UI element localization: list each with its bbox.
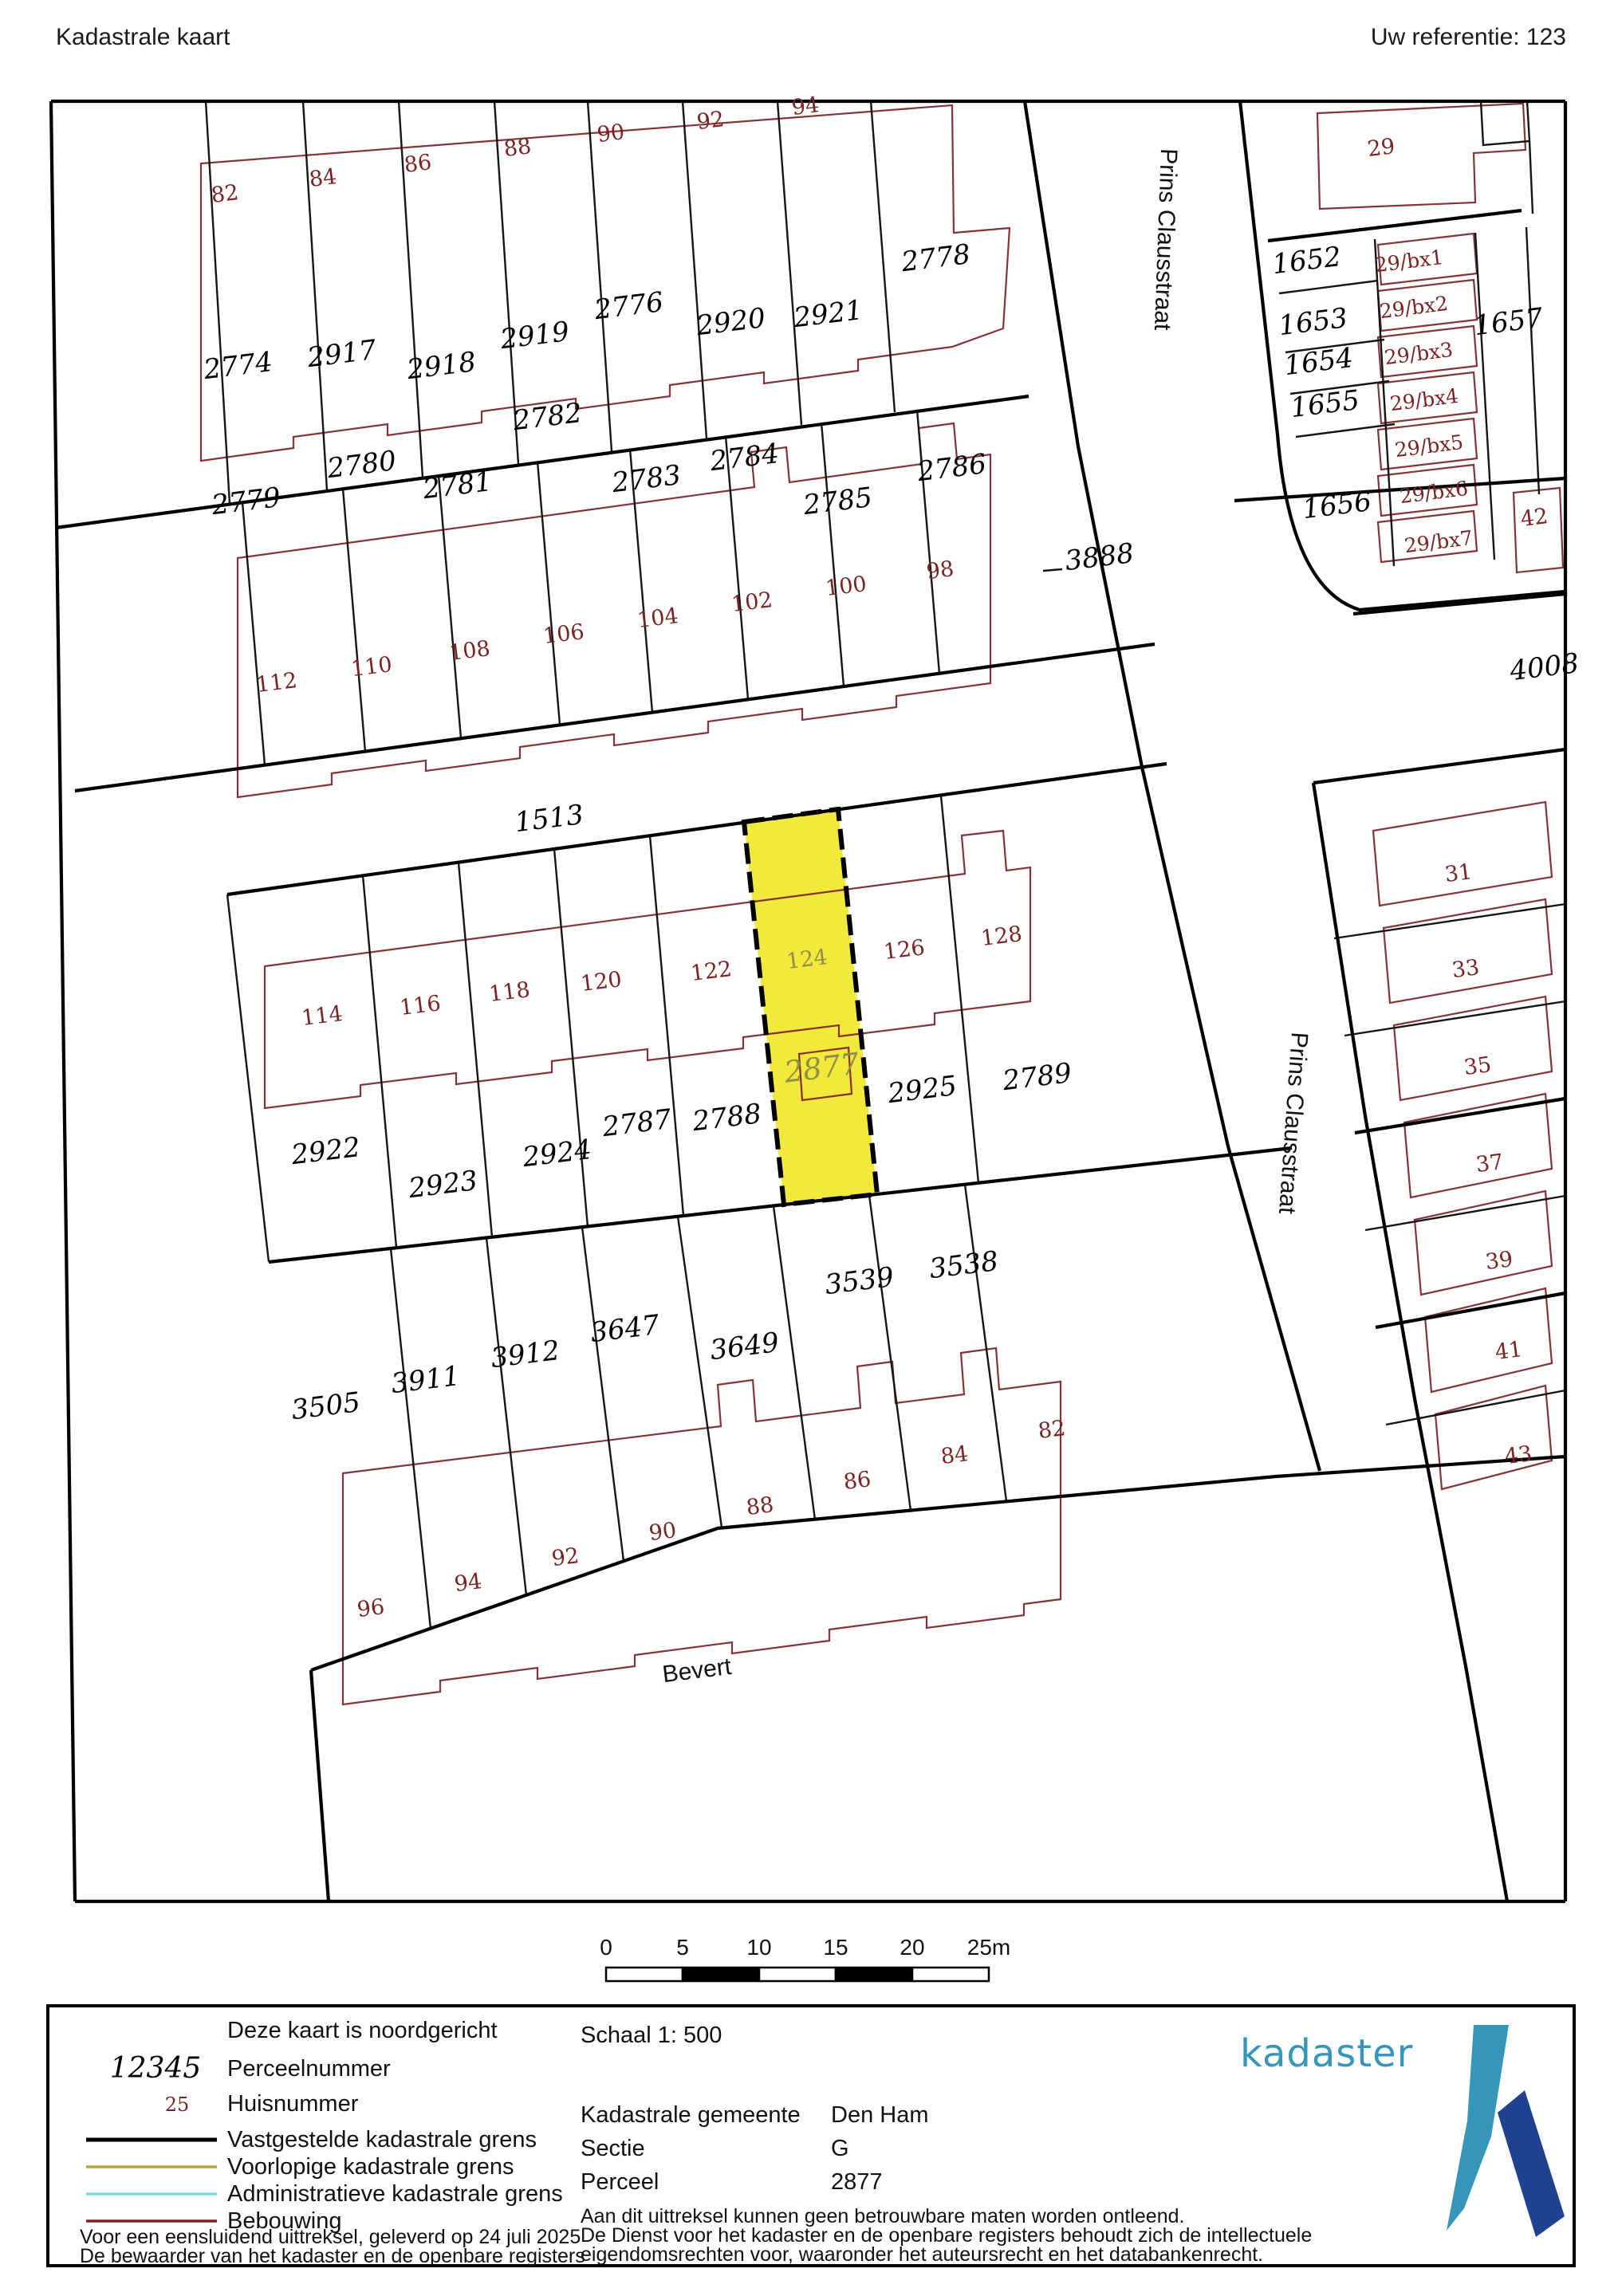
kadastrale-kaart-page: Kadastrale kaart Uw referentie: 123 2774… xyxy=(0,0,1622,2296)
grens-thin-26 xyxy=(774,1206,815,1520)
parcel-label-2781: 2781 xyxy=(420,466,494,505)
building-row-right-4 xyxy=(1415,1191,1552,1295)
grens-thin-15 xyxy=(917,410,939,674)
building-row-right-1 xyxy=(1384,899,1552,1003)
grens-thin-4 xyxy=(588,101,612,451)
bx-label-29/bx2: 29/bx2 xyxy=(1378,292,1449,323)
grens-thin-42 xyxy=(1043,569,1062,571)
scalebar-tick-0: 0 xyxy=(600,1935,612,1960)
parcel-label-3912: 3912 xyxy=(489,1335,561,1374)
legend-label-2: Vastgestelde kadastrale grens xyxy=(227,2127,537,2152)
kadaster-logo-text: kadaster xyxy=(1240,2031,1413,2076)
grens-thick-15 xyxy=(1313,783,1507,1901)
parcel-label-3649: 3649 xyxy=(708,1327,781,1366)
grens-thin-35 xyxy=(1526,227,1539,494)
parcel-label-2782: 2782 xyxy=(510,397,584,437)
grens-thin-36 xyxy=(1481,101,1529,145)
grens-thick-6 xyxy=(227,764,1167,894)
parcel-label-2788: 2788 xyxy=(690,1098,763,1138)
building-outline-3 xyxy=(343,1348,1061,1704)
bx-label-29/bx1: 29/bx1 xyxy=(1373,246,1444,277)
house-label-90: 90 xyxy=(596,120,626,147)
grens-thick-14 xyxy=(1313,749,1565,783)
grens-thin-25 xyxy=(678,1217,722,1527)
house-label-118: 118 xyxy=(487,977,531,1007)
issued-line-2: De bewaarder van het kadaster en de open… xyxy=(80,2245,585,2267)
street-label-prins-clausstraat-south: Prins Clausstraat xyxy=(1274,1032,1313,1216)
field-value-2: 2877 xyxy=(831,2169,883,2195)
parcel-label-2925: 2925 xyxy=(885,1070,959,1110)
parcel-label-2774: 2774 xyxy=(201,346,274,386)
grens-thin-1 xyxy=(303,101,327,490)
grens-thin-39 xyxy=(1344,1001,1565,1036)
parcel-label-2920: 2920 xyxy=(694,302,767,342)
grens-thin-16 xyxy=(227,894,269,1262)
parcel-label-1653: 1653 xyxy=(1277,302,1349,342)
scalebar-segment-0 xyxy=(606,1968,683,1981)
house-label-94: 94 xyxy=(790,92,821,120)
grens-thin-37 xyxy=(1529,141,1533,214)
grens-thin-40 xyxy=(1365,1196,1565,1230)
grens-thin-19 xyxy=(554,849,588,1227)
parcel-label-2917: 2917 xyxy=(305,334,378,374)
house-label-128: 128 xyxy=(979,922,1023,951)
house-label-110: 110 xyxy=(349,652,393,682)
grens-thin-27 xyxy=(869,1195,911,1511)
house-label-84: 84 xyxy=(939,1441,970,1469)
bx-label-29/bx6: 29/bx6 xyxy=(1398,477,1469,508)
parcel-label-3647: 3647 xyxy=(589,1309,661,1349)
grens-thick-1 xyxy=(51,101,75,1901)
grens-thin-6 xyxy=(778,101,801,425)
footer-block: Deze kaart is noordgericht12345Perceelnu… xyxy=(48,2006,1574,2267)
house-label-126: 126 xyxy=(882,935,926,965)
street-label-prins-clausstraat-north: Prins Clausstraat xyxy=(1149,148,1182,332)
scalebar-tick-10: 10 xyxy=(746,1935,771,1960)
grens-thick-9 xyxy=(311,1670,329,1901)
grens-thin-24 xyxy=(582,1227,624,1561)
house-label-108: 108 xyxy=(447,636,491,666)
parcel-label-3888: 3888 xyxy=(1063,537,1136,577)
parcel-label-1513: 1513 xyxy=(513,799,585,839)
field-label-2: Perceel xyxy=(581,2169,659,2195)
house-label-100: 100 xyxy=(824,572,868,601)
house-label-86: 86 xyxy=(403,150,433,178)
building-row-right-6 xyxy=(1435,1386,1552,1489)
house-label-96: 96 xyxy=(356,1594,386,1622)
street-label-bevert: Bevert xyxy=(661,1653,734,1688)
parcel-label-2785: 2785 xyxy=(801,482,874,521)
grens-thin-7 xyxy=(871,101,895,412)
grens-thin-17 xyxy=(363,875,396,1248)
house-label-29: 29 xyxy=(1366,134,1396,162)
north-note: Deze kaart is noordgericht xyxy=(227,2018,498,2043)
building-row-right-3 xyxy=(1404,1094,1552,1197)
building-outline-5 xyxy=(1514,488,1563,572)
grens-thin-20 xyxy=(650,835,683,1216)
parcel-label-2783: 2783 xyxy=(609,459,683,499)
grens-thick-16 xyxy=(1355,1099,1565,1133)
scalebar-segment-4 xyxy=(912,1968,989,1981)
building-outline-4 xyxy=(1317,104,1526,209)
grens-thin-28 xyxy=(965,1185,1006,1501)
scalebar-tick-15: 15 xyxy=(823,1935,848,1960)
field-value-1: G xyxy=(831,2136,849,2161)
scalebar-segment-1 xyxy=(683,1968,759,1981)
grens-thin-29 xyxy=(1279,281,1378,293)
scalebar-tick-20: 20 xyxy=(900,1935,924,1960)
scalebar-segment-2 xyxy=(759,1968,836,1981)
kadastrale-grenzen-thin xyxy=(206,101,1565,1629)
house-label-92: 92 xyxy=(695,107,726,135)
parcel-label-3538: 3538 xyxy=(927,1245,1000,1285)
parcel-label-2776: 2776 xyxy=(592,286,665,326)
house-label-92: 92 xyxy=(550,1543,581,1571)
house-label-84: 84 xyxy=(308,164,338,192)
house-label-116: 116 xyxy=(398,991,442,1020)
house-label-122: 122 xyxy=(689,957,733,986)
legend-label-4: Administratieve kadastrale grens xyxy=(227,2181,563,2207)
grens-thin-5 xyxy=(683,101,707,438)
parcel-label-2780: 2780 xyxy=(325,445,398,485)
house-label-88: 88 xyxy=(502,134,533,162)
house-label-120: 120 xyxy=(579,967,623,997)
grens-thin-23 xyxy=(486,1238,526,1595)
grens-thick-13 xyxy=(1353,594,1565,614)
house-label-90: 90 xyxy=(648,1518,678,1546)
house-label-114: 114 xyxy=(300,1001,344,1031)
house-label-31: 31 xyxy=(1443,859,1474,887)
page-title: Kadastrale kaart xyxy=(56,24,230,50)
parcel-label-1656: 1656 xyxy=(1301,486,1373,525)
parcel-label-3911: 3911 xyxy=(389,1360,462,1400)
house-label-41: 41 xyxy=(1494,1337,1524,1365)
field-label-1: Sectie xyxy=(581,2136,645,2161)
parcel-label-1654: 1654 xyxy=(1282,342,1355,382)
house-label-106: 106 xyxy=(541,619,585,649)
grens-thin-10 xyxy=(439,475,461,738)
scalebar-tick-25m: 25m xyxy=(967,1935,1010,1960)
bx-label-29/bx3: 29/bx3 xyxy=(1383,338,1454,369)
bx-label-29/bx4: 29/bx4 xyxy=(1388,384,1459,415)
house-label-43: 43 xyxy=(1503,1441,1533,1469)
grens-thick-17 xyxy=(1376,1293,1565,1327)
parcel-label-2784: 2784 xyxy=(707,438,781,478)
parcel-label-2786: 2786 xyxy=(915,448,988,488)
house-label-35: 35 xyxy=(1463,1052,1493,1080)
grens-thin-34 xyxy=(1475,233,1494,560)
grens-thick-8 xyxy=(311,1457,1565,1670)
legend-symbol-perceelnummer: 12345 xyxy=(110,2052,202,2085)
house-label-104: 104 xyxy=(636,603,679,633)
building-row-right-0 xyxy=(1373,802,1552,906)
parcel-label-2922: 2922 xyxy=(289,1131,362,1171)
grens-thin-38 xyxy=(1334,904,1565,938)
parcel-label-3539: 3539 xyxy=(823,1261,896,1301)
selected-house-label: 124 xyxy=(785,945,829,974)
grens-thin-8 xyxy=(242,502,265,765)
parcel-label-1657: 1657 xyxy=(1472,302,1545,342)
parcel-label-4008: 4008 xyxy=(1507,647,1581,687)
building-row-right-5 xyxy=(1425,1288,1552,1392)
grens-thin-21 xyxy=(941,796,978,1183)
field-label-0: Kadastrale gemeente xyxy=(581,2102,801,2128)
legend-label-3: Voorlopige kadastrale grens xyxy=(227,2154,514,2180)
parcel-label-2923: 2923 xyxy=(406,1165,479,1205)
scalebar-segment-3 xyxy=(836,1968,912,1981)
house-label-33: 33 xyxy=(1451,955,1481,983)
parcel-label-2779: 2779 xyxy=(209,482,282,521)
parcel-label-2789: 2789 xyxy=(1000,1057,1073,1097)
house-label-94: 94 xyxy=(453,1569,483,1597)
grens-thick-11 xyxy=(1268,210,1522,241)
grens-thin-14 xyxy=(821,423,844,686)
field-value-0: Den Ham xyxy=(831,2102,929,2128)
scale-bar: 0510152025m xyxy=(600,1935,1010,1981)
map-labels: 2774291729182919277629202921277827792780… xyxy=(201,92,1581,1688)
house-label-86: 86 xyxy=(842,1467,872,1495)
grens-thin-22 xyxy=(391,1248,431,1629)
reference-label: Uw referentie: 123 xyxy=(1371,24,1566,50)
legend-label-perceelnummer: Perceelnummer xyxy=(227,2056,391,2082)
parcel-label-1652: 1652 xyxy=(1270,241,1343,281)
grens-thin-11 xyxy=(537,462,560,725)
grens-thin-9 xyxy=(343,489,365,752)
legend-symbol-huisnummer: 25 xyxy=(165,2094,190,2116)
house-label-82: 82 xyxy=(1037,1416,1067,1444)
grens-thin-32 xyxy=(1296,424,1395,437)
parcel-label-2921: 2921 xyxy=(791,294,864,334)
parcel-label-2787: 2787 xyxy=(600,1103,673,1143)
parcel-label-2778: 2778 xyxy=(899,238,972,278)
house-label-82: 82 xyxy=(210,180,240,208)
disclaimer-line-2: eigendomsrechten voor, waaronder het aut… xyxy=(581,2243,1263,2266)
house-label-37: 37 xyxy=(1474,1150,1505,1177)
house-label-102: 102 xyxy=(730,588,774,617)
house-label-42: 42 xyxy=(1519,504,1549,532)
parcel-label-1655: 1655 xyxy=(1289,384,1361,424)
scalebar-tick-5: 5 xyxy=(676,1935,689,1960)
parcel-label-3505: 3505 xyxy=(289,1386,362,1426)
house-label-98: 98 xyxy=(925,556,955,584)
house-label-88: 88 xyxy=(745,1492,775,1520)
header: Kadastrale kaart Uw referentie: 123 xyxy=(56,24,1566,50)
schaal-label: Schaal 1: 500 xyxy=(581,2023,722,2048)
bx-label-29/bx5: 29/bx5 xyxy=(1393,431,1464,462)
house-label-39: 39 xyxy=(1484,1247,1514,1275)
house-label-112: 112 xyxy=(254,668,298,698)
legend-label-huisnummer: Huisnummer xyxy=(227,2091,359,2117)
building-row-right-2 xyxy=(1394,997,1552,1100)
